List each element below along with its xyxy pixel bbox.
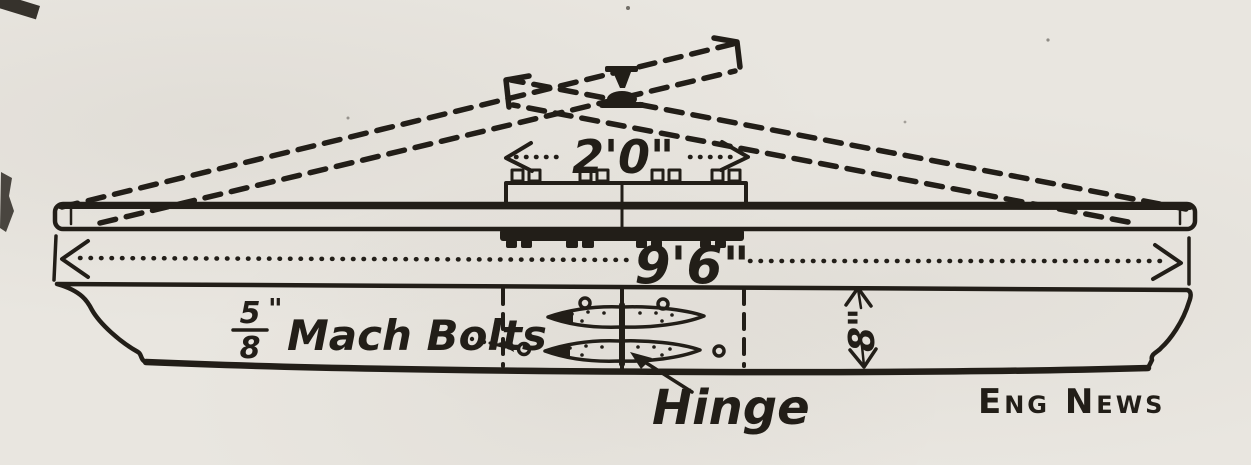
raised-beam-left-end-cap [714, 38, 740, 67]
dimension-9ft6-dotted-line [80, 258, 636, 260]
nut [521, 240, 532, 248]
dimension-8in-label: 8" [842, 308, 883, 352]
paper-speck [626, 6, 630, 10]
dimension-9ft6-right-arrow [1153, 245, 1181, 279]
paper-speck [904, 121, 907, 124]
scanned-engineering-drawing: 2'0" [0, 0, 1251, 465]
mach-bolts-annotation: 5 8 " Mach Bolts [233, 292, 547, 366]
nut [566, 240, 578, 248]
bolt-hole [714, 346, 724, 356]
hinge-strap-top [548, 307, 704, 327]
bolt-hole [580, 298, 590, 308]
bolt-hole [658, 299, 668, 309]
nut [506, 240, 517, 248]
dimension-2ft-label: 2'0" [572, 130, 674, 184]
raised-beam-right-end-cap [506, 76, 529, 107]
paper-speck [1046, 38, 1049, 41]
dimension-8in: 8" [842, 288, 883, 367]
page-corner-mark [0, 0, 40, 19]
dimension-9ft6-left-arrow [62, 241, 88, 277]
bolt-head [512, 170, 523, 181]
drawing-canvas: 2'0" [0, 0, 1251, 465]
dimension-9ft6-left-tick [54, 236, 56, 280]
hinge-annotation: Hinge [630, 352, 810, 436]
mach-bolts-fraction-denominator: 8 [240, 331, 261, 366]
leader-dot [482, 340, 486, 344]
nut [582, 240, 594, 248]
paper-speck [347, 117, 350, 120]
credit-label: Eng News [978, 382, 1165, 422]
beam-side-elevation [55, 170, 1195, 248]
hinge-label: Hinge [652, 380, 810, 436]
page-edge-smudge [0, 172, 14, 232]
mach-bolts-inch-mark: " [268, 292, 283, 325]
plan-view-plank [57, 284, 1191, 372]
mach-bolts-fraction-numerator: 5 [240, 296, 261, 331]
bolt-head [729, 170, 740, 181]
paper-artifacts [0, 0, 1050, 232]
mach-bolts-label: Mach Bolts [287, 311, 547, 360]
leader-dot [470, 337, 474, 341]
